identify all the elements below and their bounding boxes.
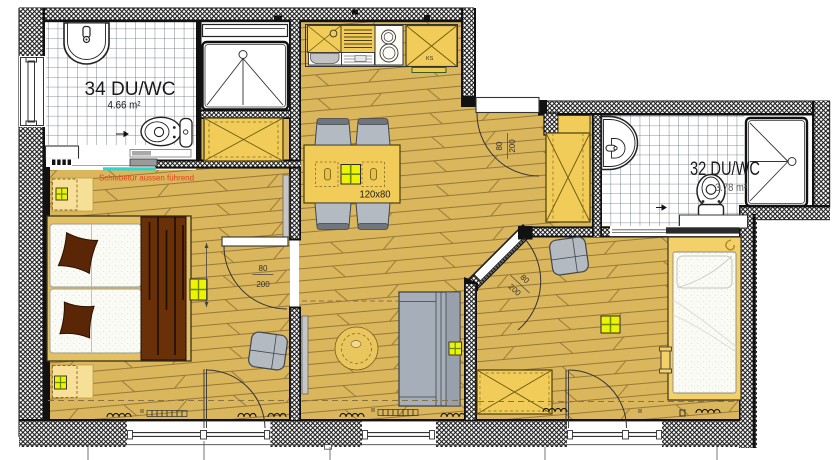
svg-text:3.78 m²: 3.78 m² <box>715 182 747 194</box>
svg-text:120x80: 120x80 <box>360 190 391 201</box>
svg-text:KS: KS <box>426 56 434 62</box>
svg-text:Schiebetür aussen führend: Schiebetür aussen führend <box>99 174 194 183</box>
svg-text:32 DU/WC: 32 DU/WC <box>690 159 760 180</box>
svg-text:80: 80 <box>259 264 268 273</box>
svg-text:34 DU/WC: 34 DU/WC <box>85 79 176 100</box>
svg-text:4.66 m²: 4.66 m² <box>108 100 141 112</box>
svg-text:80: 80 <box>495 141 504 150</box>
svg-text:200: 200 <box>256 280 270 289</box>
svg-text:200: 200 <box>508 139 517 153</box>
